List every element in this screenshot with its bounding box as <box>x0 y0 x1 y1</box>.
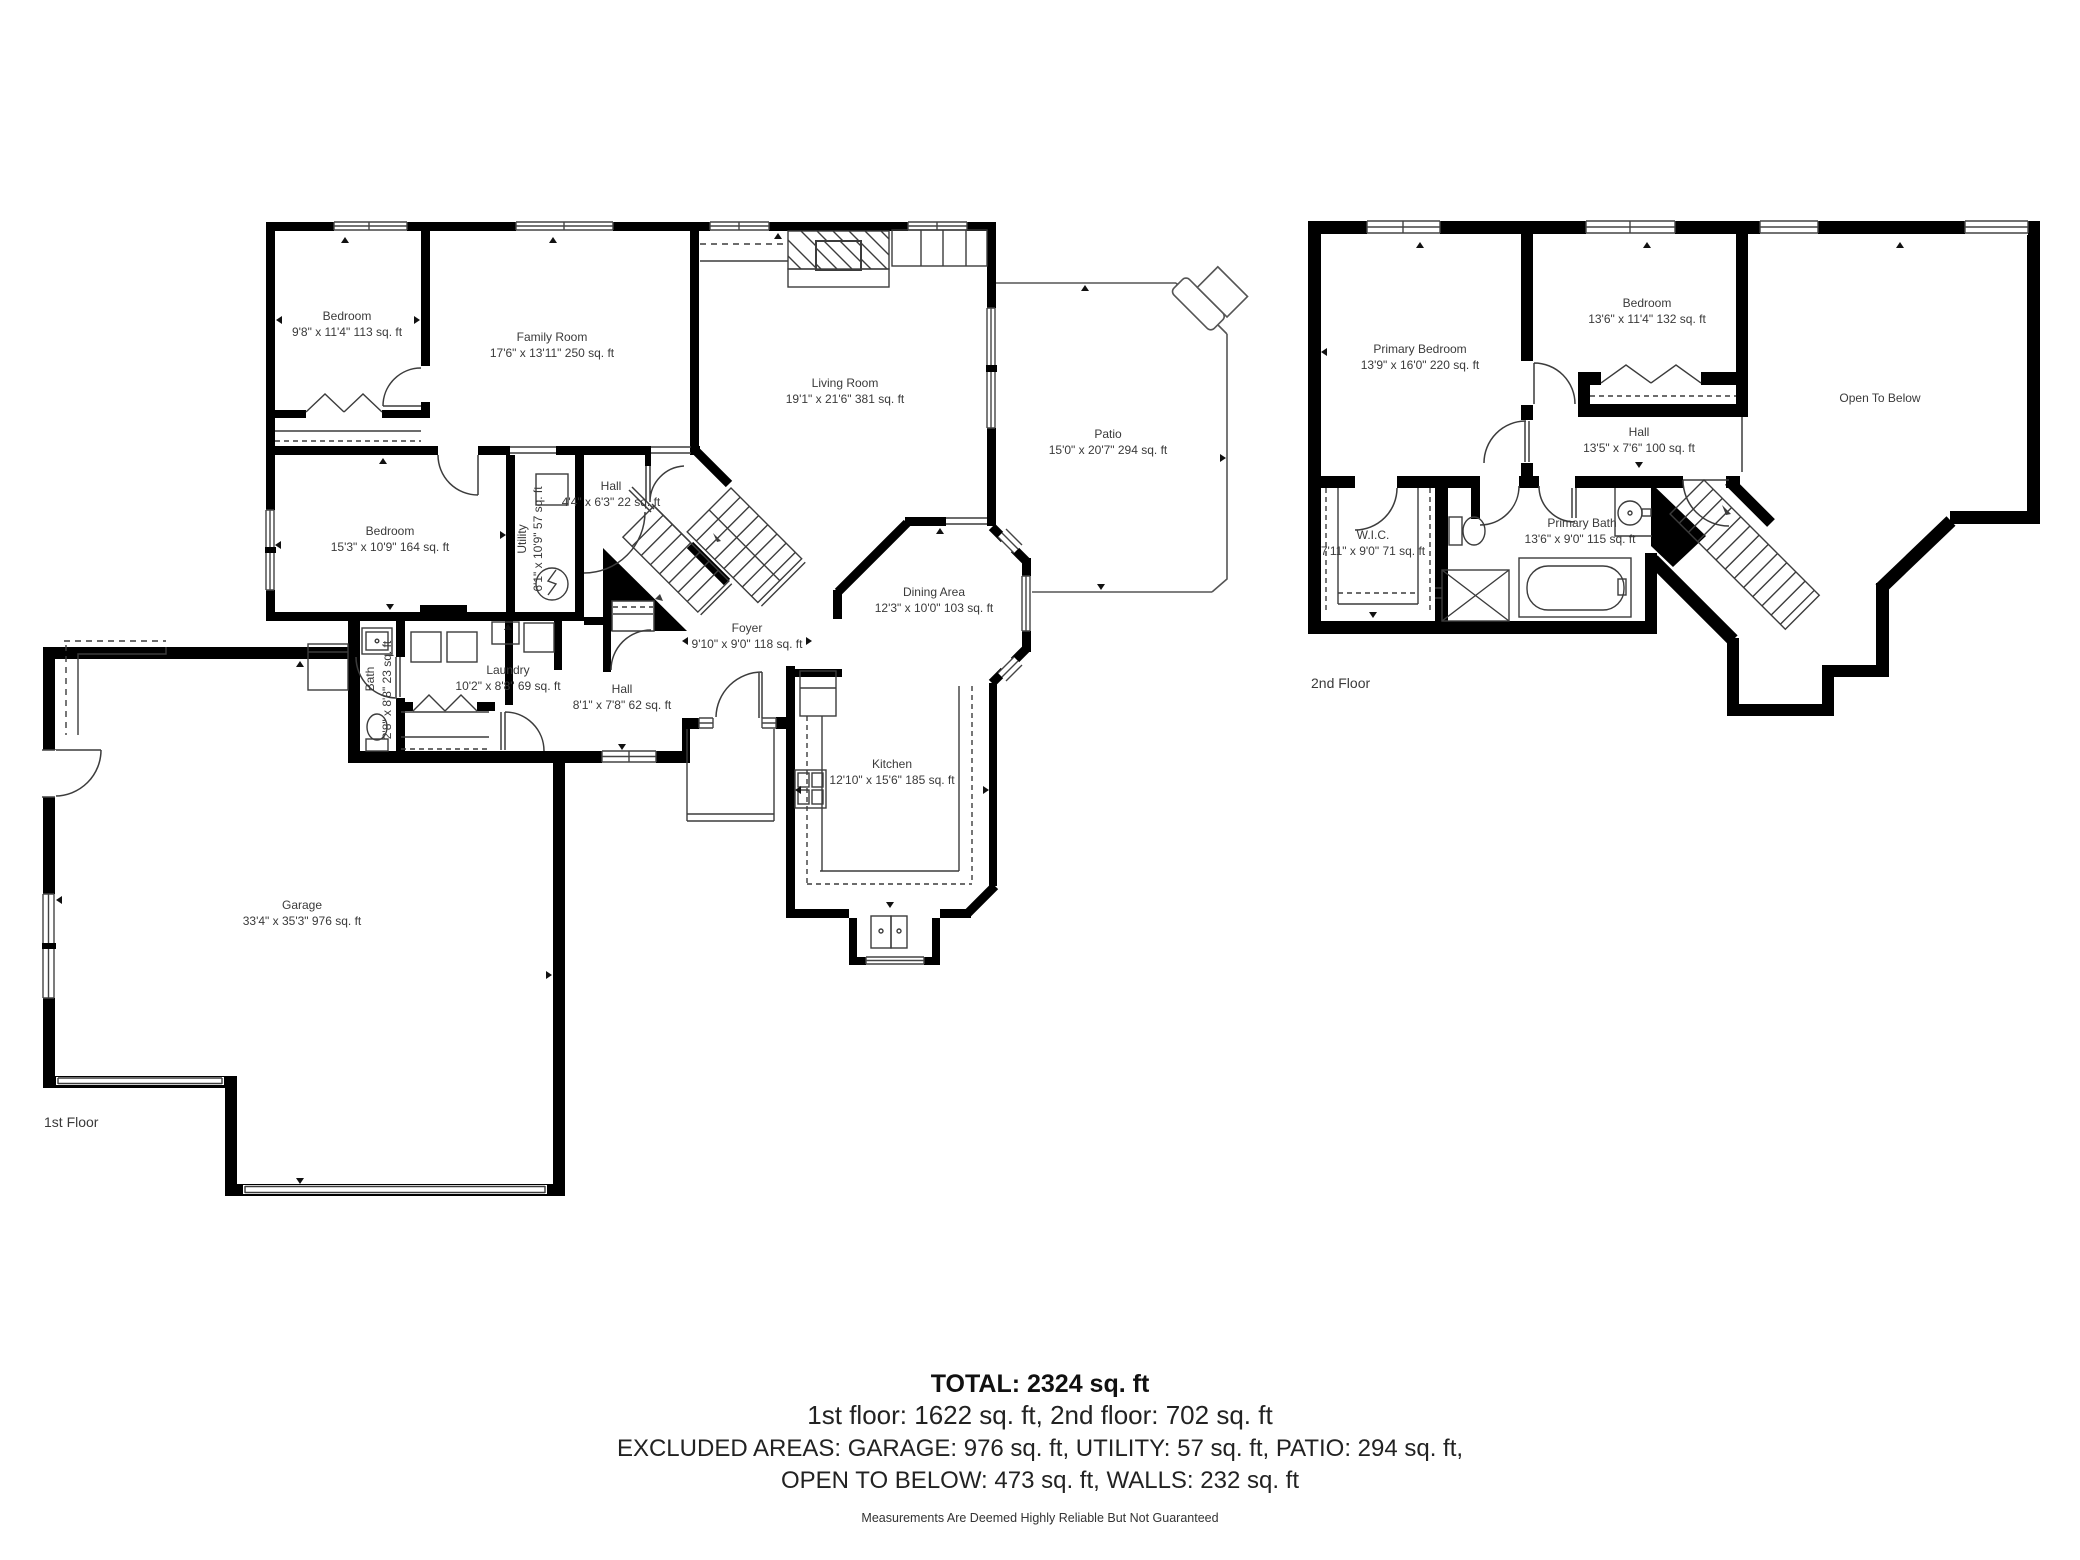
svg-text:W.I.C.: W.I.C. <box>1357 528 1390 542</box>
svg-text:Hall: Hall <box>1629 425 1650 439</box>
svg-text:Family Room: Family Room <box>517 330 588 344</box>
svg-text:TOTAL: 2324 sq. ft: TOTAL: 2324 sq. ft <box>931 1370 1150 1398</box>
svg-text:Laundry: Laundry <box>486 663 529 677</box>
svg-text:Primary Bath: Primary Bath <box>1547 516 1616 530</box>
svg-text:Utility: Utility <box>515 524 529 553</box>
svg-text:Kitchen: Kitchen <box>872 757 912 771</box>
svg-text:2'8" x 8'8" 23 sq. ft: 2'8" x 8'8" 23 sq. ft <box>380 640 394 739</box>
svg-text:Dining Area: Dining Area <box>903 585 965 599</box>
svg-text:Bedroom: Bedroom <box>323 309 372 323</box>
svg-text:4'4" x 6'3" 22 sq. ft: 4'4" x 6'3" 22 sq. ft <box>562 495 661 509</box>
svg-text:Foyer: Foyer <box>732 621 763 635</box>
svg-text:EXCLUDED AREAS: GARAGE: 976 sq: EXCLUDED AREAS: GARAGE: 976 sq. ft, UTIL… <box>617 1435 1463 1462</box>
svg-text:Hall: Hall <box>601 479 622 493</box>
svg-text:Bedroom: Bedroom <box>366 524 415 538</box>
svg-text:9'8" x 11'4" 113 sq. ft: 9'8" x 11'4" 113 sq. ft <box>292 325 403 339</box>
svg-text:12'10" x 15'6" 185 sq. ft: 12'10" x 15'6" 185 sq. ft <box>829 773 955 787</box>
svg-text:6'1" x 10'9" 57 sq. ft: 6'1" x 10'9" 57 sq. ft <box>531 486 545 592</box>
svg-text:33'4" x 35'3" 976 sq. ft: 33'4" x 35'3" 976 sq. ft <box>243 914 362 928</box>
svg-text:19'1" x 21'6" 381 sq. ft: 19'1" x 21'6" 381 sq. ft <box>786 392 905 406</box>
svg-text:15'3" x 10'9" 164 sq. ft: 15'3" x 10'9" 164 sq. ft <box>331 540 450 554</box>
svg-text:9'10" x 9'0" 118 sq. ft: 9'10" x 9'0" 118 sq. ft <box>692 637 804 651</box>
svg-text:7'11" x 9'0" 71 sq. ft: 7'11" x 9'0" 71 sq. ft <box>1321 544 1426 558</box>
svg-text:Primary Bedroom: Primary Bedroom <box>1373 342 1466 356</box>
svg-text:8'1" x 7'8" 62 sq. ft: 8'1" x 7'8" 62 sq. ft <box>573 698 672 712</box>
svg-text:1st floor: 1622 sq. ft, 2nd fl: 1st floor: 1622 sq. ft, 2nd floor: 702 s… <box>807 1400 1273 1430</box>
svg-text:13'6" x 9'0" 115 sq. ft: 13'6" x 9'0" 115 sq. ft <box>1525 532 1637 546</box>
svg-text:Garage: Garage <box>282 898 322 912</box>
svg-text:12'3" x 10'0" 103 sq. ft: 12'3" x 10'0" 103 sq. ft <box>875 601 994 615</box>
svg-text:13'6" x 11'4" 132 sq. ft: 13'6" x 11'4" 132 sq. ft <box>1588 312 1706 326</box>
svg-text:OPEN TO BELOW: 473 sq. ft, WAL: OPEN TO BELOW: 473 sq. ft, WALLS: 232 sq… <box>781 1467 1299 1494</box>
svg-text:10'2" x 8'8" 69 sq. ft: 10'2" x 8'8" 69 sq. ft <box>455 679 561 693</box>
svg-text:Open To Below: Open To Below <box>1839 391 1920 405</box>
svg-text:2nd Floor: 2nd Floor <box>1311 675 1370 691</box>
svg-text:Measurements Are Deemed Highly: Measurements Are Deemed Highly Reliable … <box>861 1511 1218 1525</box>
svg-text:Bath: Bath <box>363 667 377 692</box>
svg-text:15'0" x 20'7" 294 sq. ft: 15'0" x 20'7" 294 sq. ft <box>1049 443 1168 457</box>
svg-text:Bedroom: Bedroom <box>1623 296 1672 310</box>
svg-text:Patio: Patio <box>1094 427 1122 441</box>
svg-text:13'5" x 7'6" 100 sq. ft: 13'5" x 7'6" 100 sq. ft <box>1583 441 1696 455</box>
svg-text:Living Room: Living Room <box>812 376 879 390</box>
svg-text:Hall: Hall <box>612 682 633 696</box>
svg-text:17'6" x 13'11" 250 sq. ft: 17'6" x 13'11" 250 sq. ft <box>490 346 615 360</box>
svg-text:13'9" x 16'0" 220 sq. ft: 13'9" x 16'0" 220 sq. ft <box>1361 358 1480 372</box>
svg-text:1st Floor: 1st Floor <box>44 1114 99 1130</box>
